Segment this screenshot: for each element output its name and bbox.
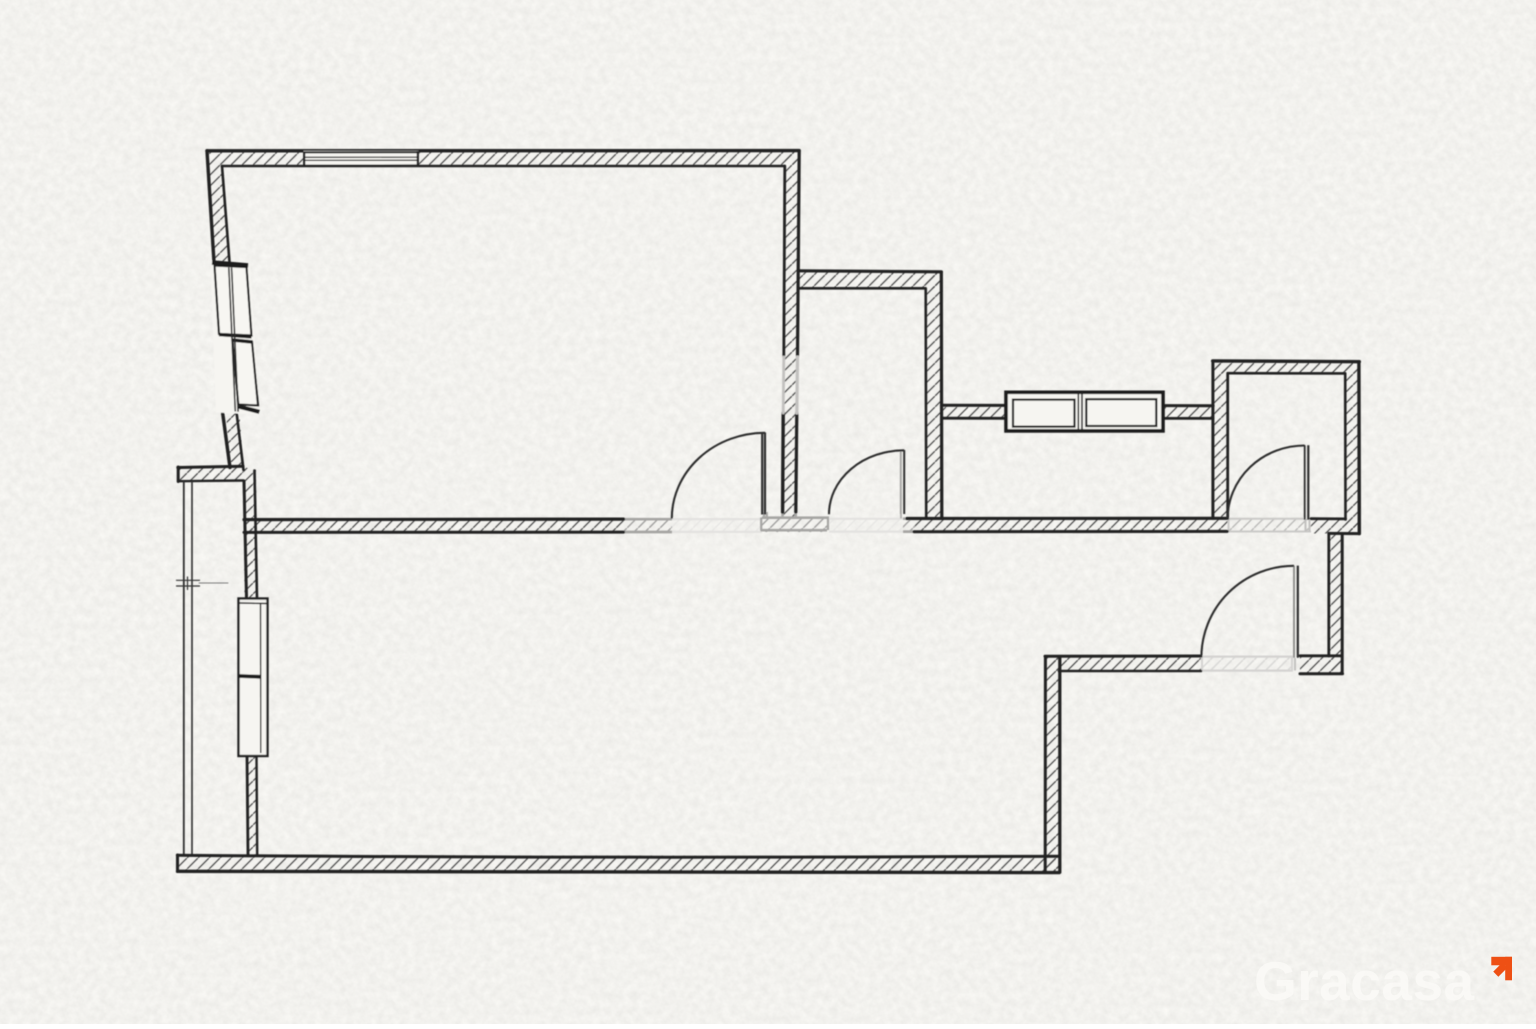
svg-text:Gracasa: Gracasa [1254,950,1475,1012]
